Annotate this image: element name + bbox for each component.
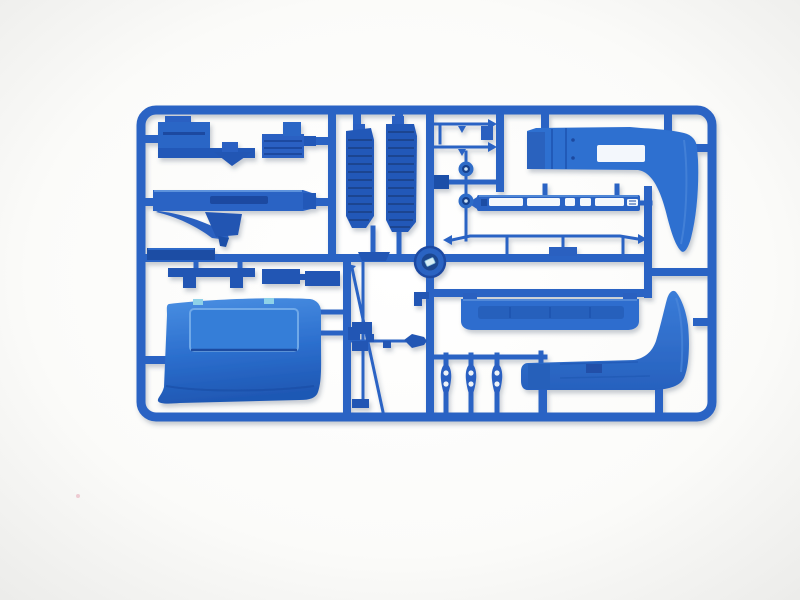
part-grille-support-foot [358, 252, 390, 261]
part-grille-left [346, 124, 374, 228]
runner-block-b [352, 341, 368, 351]
rod-nub [383, 341, 391, 348]
strip-slot [595, 198, 624, 206]
strip-slot [489, 198, 523, 206]
deflector-gate-notch-left [193, 299, 203, 305]
dashboard-end-tab [303, 193, 316, 209]
part-chassis-strip [477, 195, 640, 211]
step-end-tab [304, 136, 316, 146]
bracket-block-b [305, 271, 340, 286]
strip-notch [481, 199, 487, 206]
bracket-link [300, 274, 305, 280]
part-lightbar-foot [549, 247, 577, 256]
rod-foot [352, 399, 369, 408]
fairing-rivet [571, 138, 575, 142]
step-main-box [158, 122, 210, 152]
teardrop-hole [494, 370, 499, 375]
visor-recess [478, 306, 624, 319]
teardrop-hole [494, 381, 499, 386]
dashboard-recess [210, 196, 268, 204]
product-photo: Product photo of a blue injection-moulde… [0, 0, 800, 600]
strip-slot [527, 198, 560, 206]
fairing-upper-end-panel [527, 132, 545, 169]
teardrop-hole [443, 381, 448, 386]
sprue-photo-svg [0, 0, 800, 600]
fairing-lower-vent [586, 364, 602, 373]
fairing-upper-hole [597, 145, 645, 162]
strip-slot [565, 198, 575, 206]
part-center-hub [415, 247, 445, 277]
deflector-gate-notch-right [264, 298, 274, 304]
strip-slot [580, 198, 591, 206]
grille-right-notch [392, 116, 404, 125]
square-pad [434, 175, 449, 189]
part-sill-strip [147, 248, 215, 260]
strip-slot [627, 199, 638, 206]
washer-hole [464, 167, 468, 171]
fairing-lower-end-panel [528, 364, 550, 389]
runner-block-c [348, 327, 360, 340]
teardrop-hole [468, 381, 473, 386]
fairing-rivet [571, 156, 575, 160]
step-upper-box [283, 122, 301, 136]
dust-speck [76, 494, 80, 498]
part-roof-deflector [158, 298, 321, 404]
bracket-block-a [262, 269, 300, 284]
part-grille-right [386, 116, 417, 232]
photo-stage: Product photo of a blue injection-moulde… [0, 0, 800, 600]
rod-nub [366, 334, 374, 342]
step-detail-line [163, 132, 205, 135]
washer-hole [464, 199, 468, 203]
deflector-recess [190, 309, 298, 351]
teardrop-hole [468, 370, 473, 375]
teardrop-hole [443, 370, 448, 375]
cylinder-nub [481, 126, 493, 140]
